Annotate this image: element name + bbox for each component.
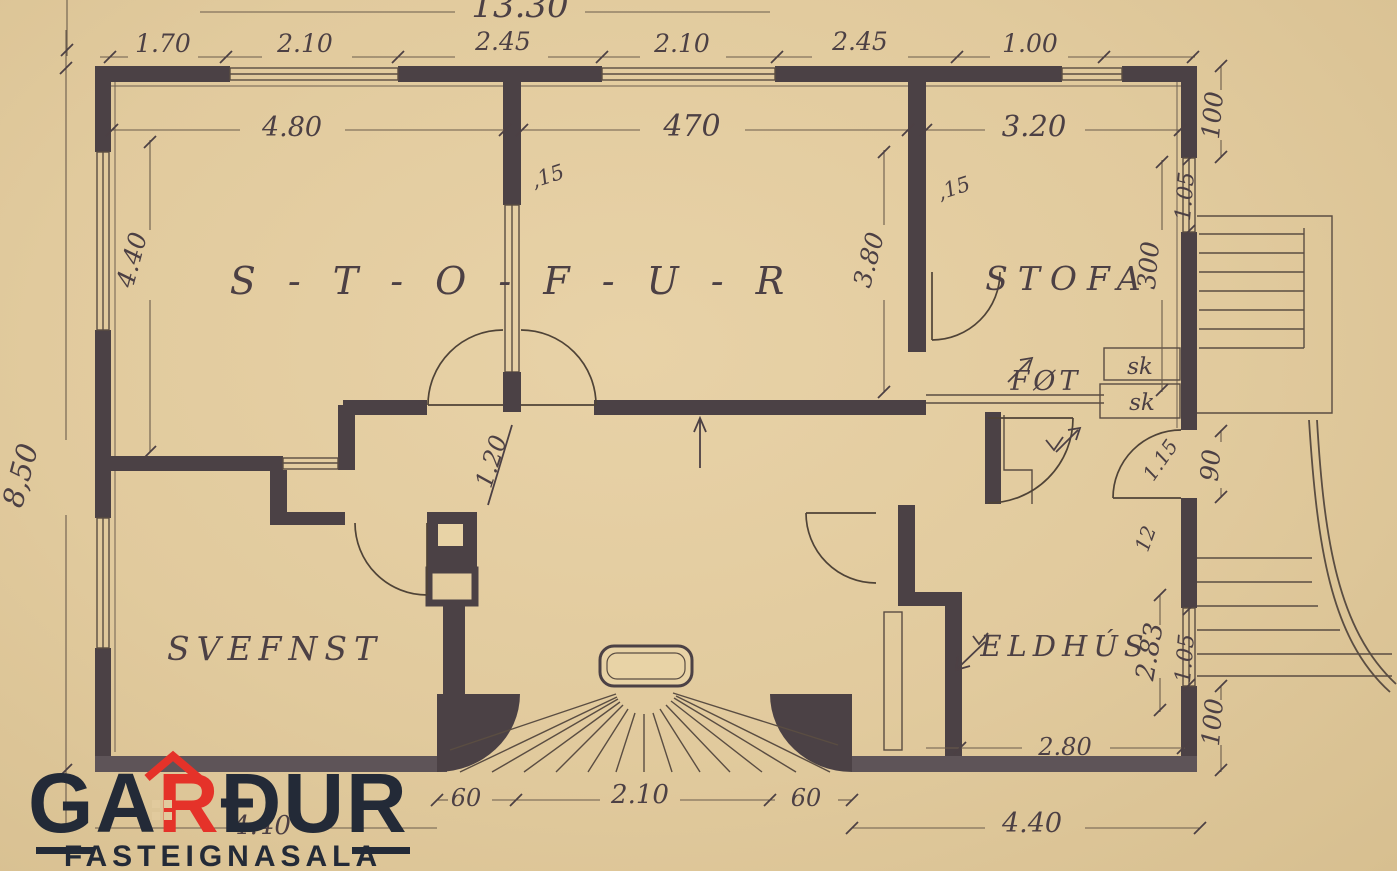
dim-entry-center: 2.10 — [610, 780, 669, 810]
logo-part1: GA — [28, 756, 158, 850]
stair-landing — [600, 646, 692, 686]
stairs-exterior-upper — [1197, 216, 1332, 413]
window-top-2 — [602, 68, 775, 80]
room-label-stofa: STOFA — [985, 259, 1151, 298]
entry-pier-left — [437, 694, 520, 772]
dim-top-6: 1.00 — [1002, 29, 1058, 58]
floor-plan-drawing: 13.30 1.70 2.10 2.45 2.10 2.45 1.00 4.80… — [0, 0, 1397, 871]
dim-top-2: 2.10 — [276, 29, 333, 58]
room-label-fot: FØT — [1010, 366, 1082, 397]
dim-right-window-upper: 1.05 — [1171, 171, 1200, 222]
door-arc-stofur-left — [428, 330, 503, 405]
door-arc-backhall — [806, 513, 876, 583]
dim-door-right: 90 — [1195, 448, 1227, 482]
dim-overall-left: 8,50 — [0, 440, 45, 511]
dim-top-3: 2.45 — [474, 27, 531, 56]
room-label-stofur: S - T - O - F - U - R — [230, 259, 795, 303]
blueprint-sheet: 13.30 1.70 2.10 2.45 2.10 2.45 1.00 4.80… — [0, 0, 1397, 871]
chimney — [427, 512, 477, 696]
entry-direction-arrow — [694, 418, 706, 468]
window-left-1 — [97, 152, 109, 330]
dim-overall-top: 13.30 — [471, 0, 568, 26]
door-arc-stofur-right — [521, 330, 596, 405]
dim-top-4: 2.10 — [653, 29, 710, 58]
brand-logo: GARÐUR FASTEIGNASALA — [28, 756, 410, 871]
dim-left-room-height: 4.40 — [110, 229, 153, 291]
closet-label-lower: sk — [1129, 390, 1155, 416]
room-label-eldhus: ELDHÚS — [979, 628, 1149, 663]
dimension-labels: 13.30 1.70 2.10 2.45 2.10 2.45 1.00 4.80… — [0, 0, 1229, 841]
logo-subtitle: FASTEIGNASALA — [64, 840, 382, 871]
entry-pier-right — [770, 694, 852, 772]
window-top-1 — [230, 68, 398, 80]
logo-wordmark: GARÐUR — [28, 756, 409, 850]
dim-wall-right: ,15 — [934, 172, 973, 205]
dim-right-top: 100 — [1196, 90, 1229, 140]
closet-label-upper: sk — [1127, 354, 1153, 380]
opening-h2 — [283, 458, 338, 469]
room-label-svefnst: SVEFNST — [167, 629, 383, 668]
dim-right-bottom: 100 — [1196, 697, 1229, 747]
dim-wall-left: ,15 — [528, 160, 567, 193]
window-left-2 — [97, 518, 109, 648]
dim-kitchen-width: 2.80 — [1037, 733, 1091, 761]
dim-hall-width: 1.20 — [470, 432, 513, 491]
window-top-3 — [1062, 68, 1122, 80]
dim-width-2: 470 — [662, 109, 720, 144]
door-arcs — [355, 272, 1181, 595]
dim-mid-height: 3.80 — [848, 229, 890, 290]
dim-width-3: 3.20 — [1002, 109, 1067, 143]
stairs-exterior-lower — [1197, 420, 1396, 692]
dim-top-5: 2.45 — [831, 27, 888, 56]
dim-width-1: 4.80 — [261, 112, 322, 143]
open-door-leaf — [884, 612, 902, 750]
door-arc-svefnst — [355, 523, 427, 595]
dim-door-diagonal: 1.15 — [1138, 435, 1183, 485]
dim-wall-small: 12 — [1130, 523, 1161, 555]
dim-entry-right: 60 — [791, 784, 822, 812]
dim-entry-left: 60 — [451, 784, 482, 812]
logo-part2: ÐUR — [221, 756, 409, 850]
dim-bottom-right: 4.40 — [1001, 808, 1062, 839]
dim-top-1: 1.70 — [135, 29, 191, 58]
dim-right-window-lower: 1.05 — [1171, 633, 1200, 684]
